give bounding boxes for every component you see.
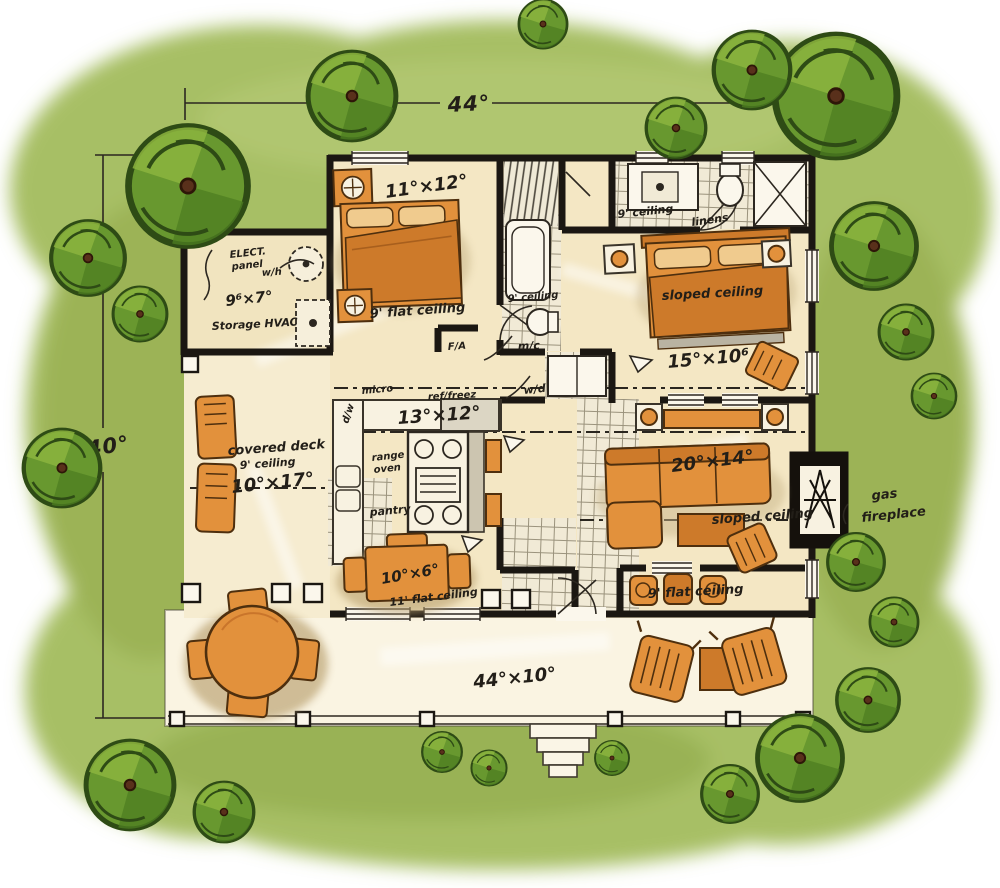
forced-air-label: F/A (447, 341, 466, 353)
counter-strip (468, 432, 484, 532)
cabinet (486, 494, 501, 526)
water-heater-label: w/h (261, 267, 282, 279)
tree (758, 716, 843, 801)
tree (113, 287, 167, 341)
tree (879, 305, 933, 359)
medicine-cabinet-label: m/c (517, 339, 540, 353)
washer-dryer (548, 356, 606, 396)
tree (832, 204, 917, 289)
fireplace-label-1: gas (871, 486, 899, 504)
tree (702, 766, 759, 823)
tree (422, 732, 462, 772)
tree (471, 750, 506, 785)
tree (519, 0, 567, 48)
tree (595, 741, 629, 775)
gas-fireplace (790, 452, 848, 548)
overall-width-label: 44° (446, 91, 491, 117)
tree (828, 534, 885, 591)
tree (646, 98, 706, 158)
bath-sink (527, 309, 558, 335)
water-heater (289, 247, 323, 281)
tree (714, 32, 791, 109)
tree (308, 52, 396, 140)
tree (24, 430, 101, 507)
tree (86, 741, 174, 829)
cabinet (486, 440, 501, 472)
console-table (664, 410, 760, 428)
tree (129, 127, 248, 246)
master-shower (754, 162, 806, 226)
washer-dryer-label: w/d (523, 382, 546, 397)
tree (51, 221, 125, 295)
floor-plan-illustration: 44° 40° (0, 0, 1000, 888)
tree (912, 374, 956, 418)
bathtub (506, 220, 550, 300)
tree (194, 782, 254, 842)
hvac-unit (296, 300, 330, 346)
tree (870, 598, 918, 646)
range-oven (408, 432, 468, 532)
floor-plan-svg: 44° 40° (0, 0, 1000, 888)
closet-hatch (504, 160, 558, 226)
tree (837, 669, 899, 731)
tree (775, 35, 897, 157)
master-toilet (717, 164, 743, 206)
